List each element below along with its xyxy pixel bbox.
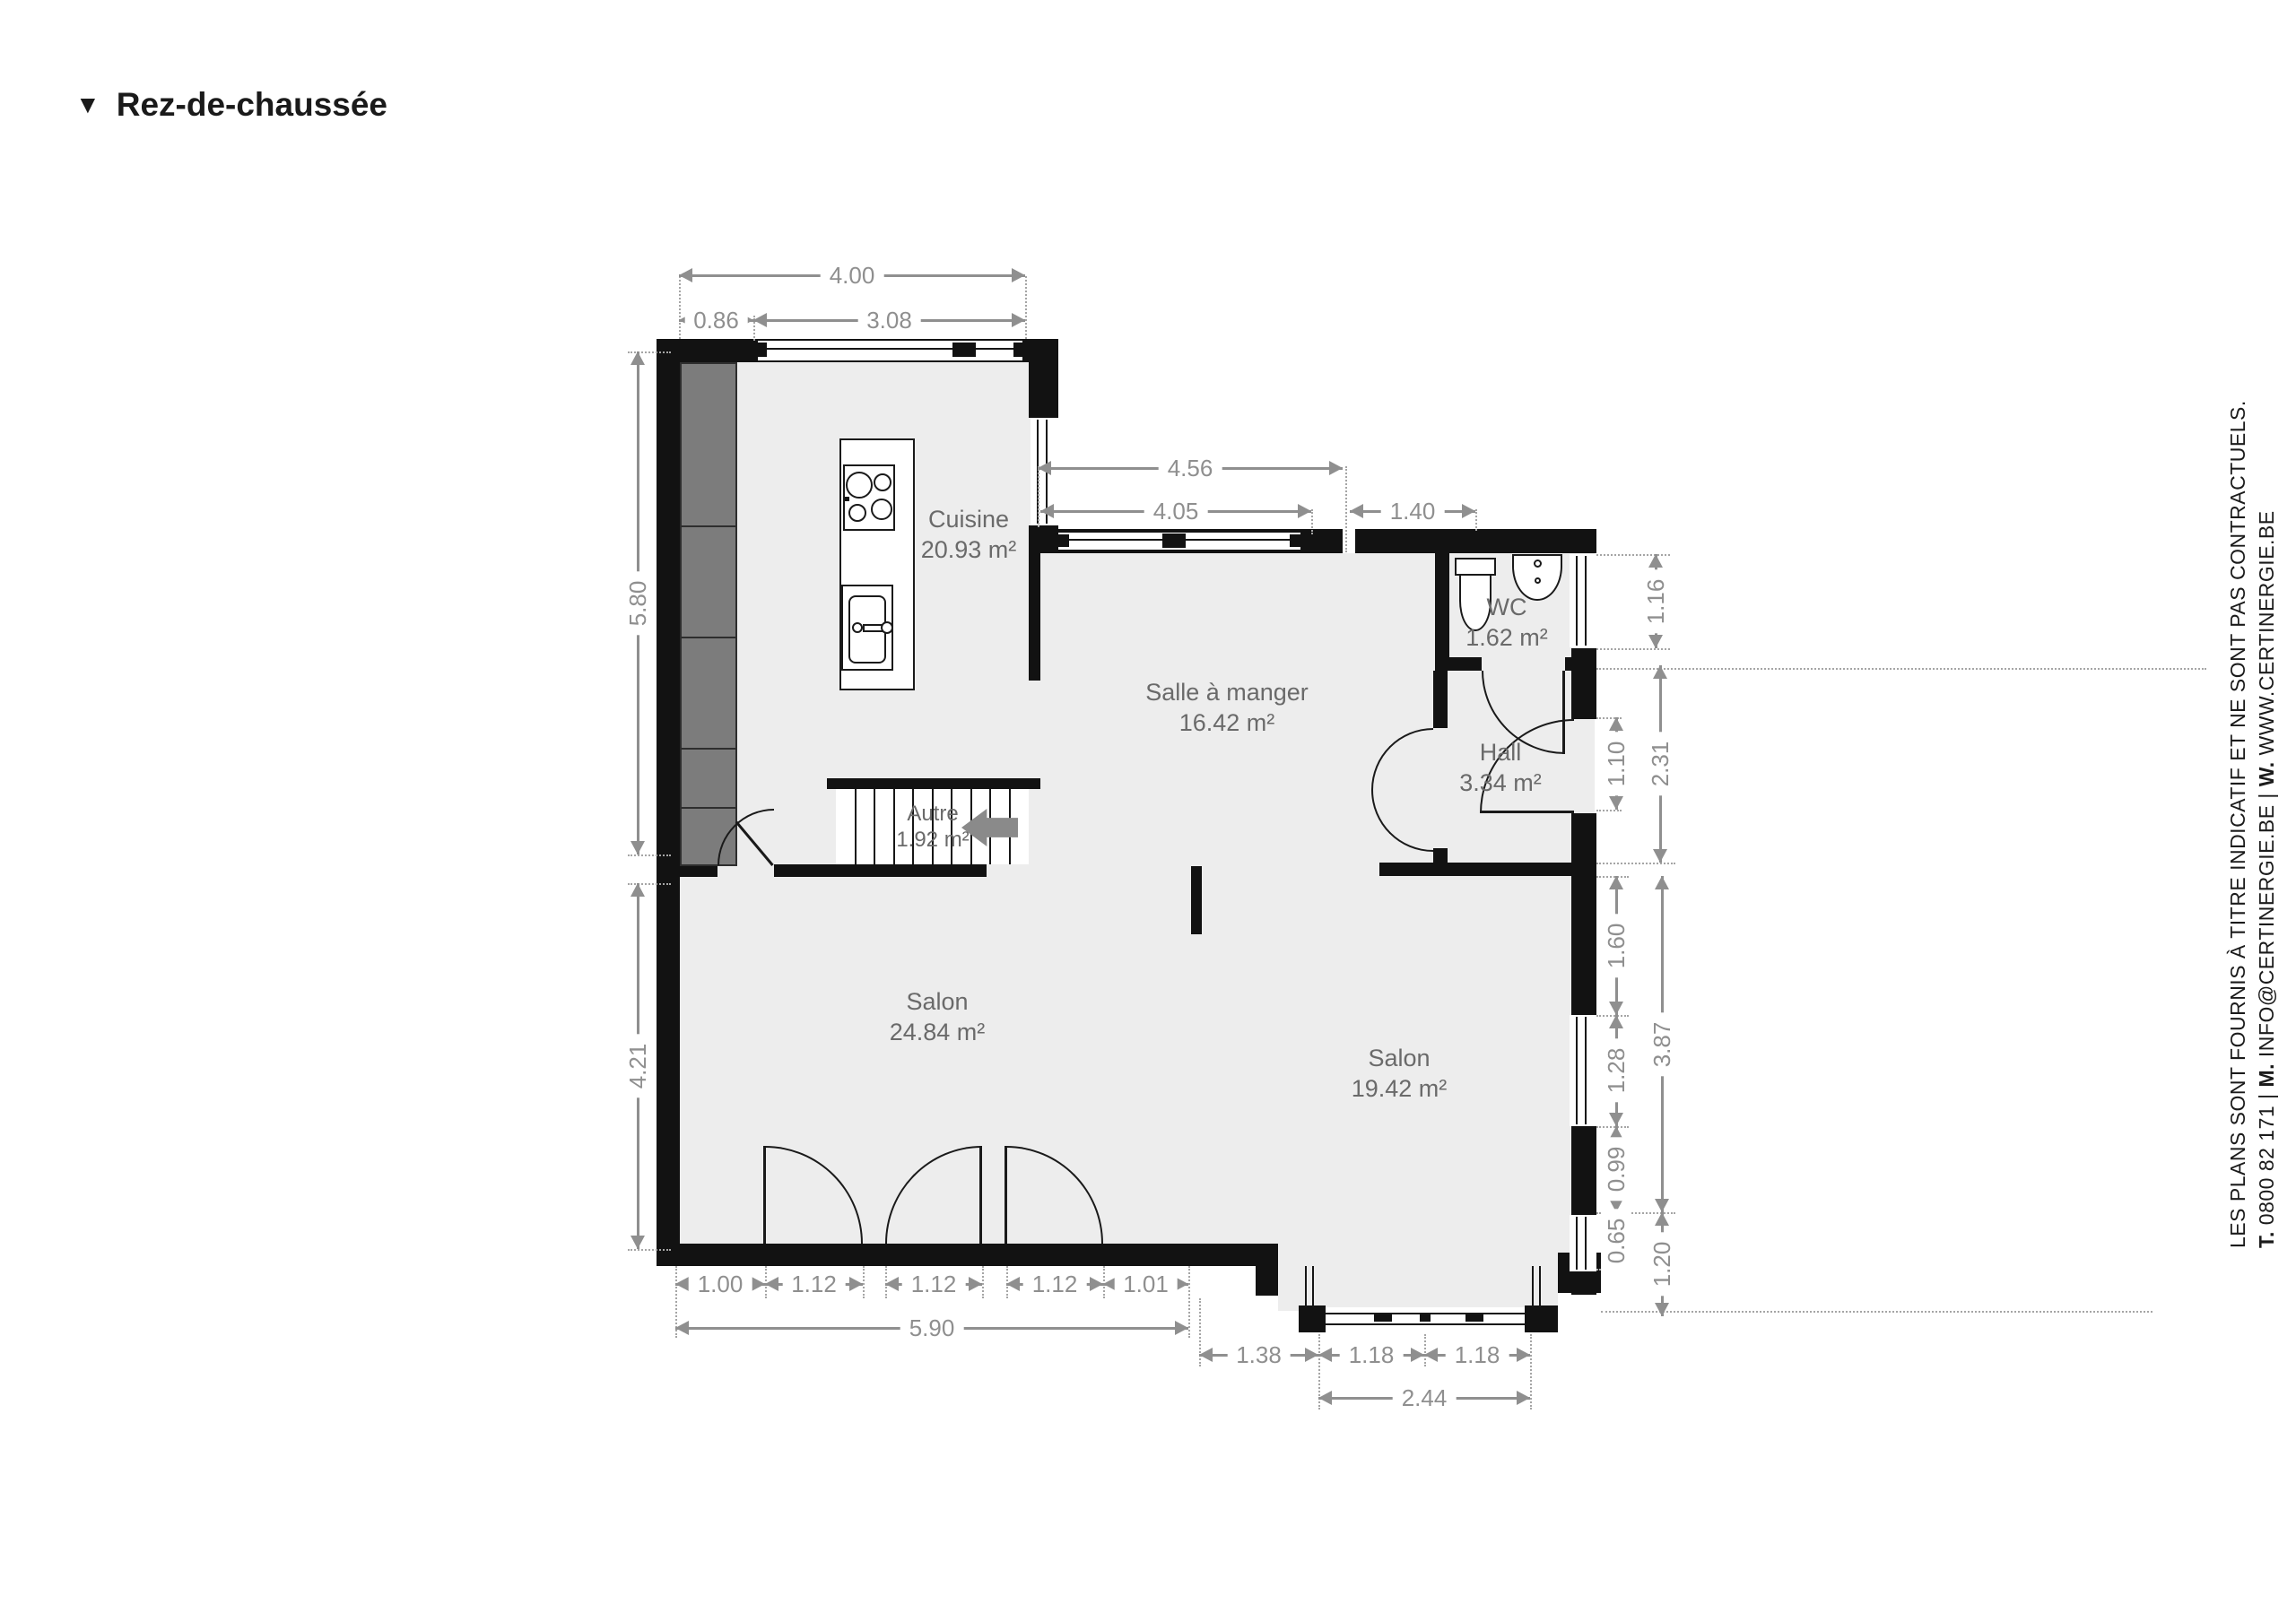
kitchen-counter — [680, 525, 737, 638]
window-mullion — [1162, 533, 1186, 548]
dimension-label: 3.08 — [857, 307, 921, 334]
dimension: 4.00 — [679, 262, 1025, 289]
window-jamb — [1290, 534, 1300, 547]
wall — [1379, 863, 1596, 876]
room-name: Salon — [839, 986, 1036, 1017]
dimension: 4.21 — [624, 883, 651, 1249]
dimension: 1.18 — [1318, 1341, 1424, 1368]
dimension-label: 1.12 — [902, 1271, 966, 1297]
window-glazing — [1312, 1266, 1314, 1307]
dimension: 5.80 — [624, 351, 651, 854]
room-label-salle-a-manger: Salle à manger16.42 m² — [1110, 677, 1344, 738]
dimension: 0.86 — [679, 307, 753, 334]
room-label-hall: Hall3.34 m² — [1433, 737, 1568, 798]
dimension-label: 1.18 — [1446, 1341, 1509, 1368]
dimension: 2.31 — [1647, 665, 1674, 863]
stair-tread — [855, 789, 857, 864]
extension-line — [1345, 466, 1347, 552]
wall — [1433, 671, 1448, 728]
dimension: 3.08 — [753, 307, 1025, 334]
dimension-label: 1.60 — [1603, 914, 1630, 977]
cooktop-burner — [846, 472, 873, 499]
window-glazing — [1576, 556, 1578, 646]
dimension-label: 1.12 — [782, 1271, 846, 1297]
wall — [1435, 657, 1482, 671]
dimension-label: 0.99 — [1603, 1138, 1630, 1201]
sink-faucet — [852, 622, 863, 633]
dimension: 0.65 — [1603, 1212, 1630, 1269]
room-area: 16.42 m² — [1110, 707, 1344, 738]
toilet-icon — [1455, 558, 1496, 576]
floor-plan-page: ▼ Rez-de-chaussée — [0, 0, 2296, 1622]
window-glazing — [1576, 1017, 1578, 1124]
dimension: 1.12 — [765, 1271, 863, 1297]
extension-line — [1025, 276, 1027, 339]
floor-title: ▼ Rez-de-chaussée — [75, 86, 387, 124]
room-area: 19.42 m² — [1300, 1073, 1498, 1104]
washbasin-drain — [1535, 577, 1541, 584]
door-leaf — [1004, 1146, 1007, 1244]
room-name: Cuisine — [870, 504, 1067, 534]
wall — [1029, 339, 1058, 418]
window-glazing — [1585, 1017, 1587, 1124]
wall — [1256, 1244, 1278, 1296]
window-glazing — [1539, 1266, 1541, 1307]
dimension-label: 4.00 — [821, 262, 884, 289]
dimension: 0.99 — [1603, 1126, 1630, 1212]
window-jamb — [1013, 343, 1022, 357]
entrance-door-leaf — [1480, 811, 1574, 813]
wall — [1571, 648, 1596, 719]
dimension-label: 1.28 — [1603, 1039, 1630, 1103]
dimension: 1.60 — [1603, 876, 1630, 1015]
room-name: Autre — [865, 801, 1000, 827]
wall-bay-corner — [1525, 1305, 1558, 1332]
window — [1570, 1015, 1596, 1126]
window-glazing — [1326, 1323, 1525, 1325]
window — [758, 341, 1022, 360]
contact-text: T. 0800 82 171 | M. INFO@CERTINERGIE.BE … — [2255, 412, 2279, 1248]
wall — [1029, 553, 1040, 681]
dimension-label: 3.87 — [1648, 1012, 1675, 1076]
dimension-label: 2.31 — [1647, 733, 1674, 796]
dimension-label: 4.56 — [1159, 455, 1222, 481]
window-jamb — [758, 343, 767, 357]
dimension-label: 5.80 — [624, 571, 651, 635]
room-label-autre: Autre1.92 m² — [865, 801, 1000, 853]
dimension-label: 1.10 — [1603, 732, 1630, 795]
dimension-label: 1.38 — [1227, 1341, 1291, 1368]
page-title: Rez-de-chaussée — [117, 86, 387, 124]
dimension: 1.16 — [1642, 554, 1669, 648]
contact-web: WWW.CERTINERGIE.BE — [2255, 510, 2278, 761]
washbasin-faucet — [1534, 559, 1542, 568]
extension-line — [1311, 509, 1313, 534]
dimension: 3.87 — [1648, 876, 1675, 1212]
door-leaf — [979, 1146, 982, 1244]
room-area: 24.84 m² — [839, 1017, 1036, 1047]
room-label-salon-2: Salon19.42 m² — [1300, 1043, 1498, 1104]
window-glazing — [1585, 556, 1587, 646]
dimension: 1.00 — [675, 1271, 765, 1297]
dimension-label: 2.44 — [1393, 1384, 1457, 1411]
dimension-label: 1.16 — [1642, 569, 1669, 633]
extension-line — [1188, 1266, 1190, 1338]
room-label-wc: WC1.62 m² — [1453, 592, 1561, 653]
room-name: Hall — [1433, 737, 1568, 768]
dimension: 4.05 — [1040, 498, 1311, 525]
extension-line — [982, 1266, 984, 1298]
sink-faucet-knob — [881, 621, 893, 634]
contact-web-prefix: W. — [2255, 761, 2278, 786]
dimension: 1.12 — [1006, 1271, 1103, 1297]
wall — [657, 1244, 1278, 1266]
wall — [1191, 866, 1202, 934]
wall — [774, 864, 987, 877]
dimension-label: 1.18 — [1340, 1341, 1404, 1368]
kitchen-counter — [680, 637, 737, 750]
contact-mail-prefix: M. — [2255, 1063, 2278, 1088]
dimension: 2.44 — [1318, 1384, 1530, 1411]
window-mullion — [952, 343, 976, 357]
window-mullion — [1465, 1314, 1483, 1322]
window-glazing — [1585, 1217, 1587, 1270]
room-label-salon-1: Salon24.84 m² — [839, 986, 1036, 1047]
extension-line — [1596, 668, 2206, 670]
dimension-label: 4.05 — [1144, 498, 1208, 525]
dimension: 1.12 — [885, 1271, 982, 1297]
dimension: 1.18 — [1424, 1341, 1530, 1368]
extension-line — [628, 854, 671, 856]
dimension-label: 0.86 — [684, 307, 748, 334]
dimension: 1.10 — [1603, 717, 1630, 810]
extension-line — [1475, 509, 1477, 531]
room-area: 1.92 m² — [865, 827, 1000, 853]
kitchen-counter — [680, 748, 737, 809]
dimension-label: 1.01 — [1114, 1271, 1178, 1297]
extension-line — [1596, 648, 1670, 650]
window-glazing — [1305, 1266, 1307, 1307]
dimension: 1.28 — [1603, 1015, 1630, 1126]
window-mullion — [1374, 1314, 1392, 1322]
wall-bay-corner — [1299, 1305, 1326, 1332]
room-area: 1.62 m² — [1453, 622, 1561, 653]
dimension: 1.38 — [1199, 1341, 1318, 1368]
door-leaf — [763, 1146, 766, 1244]
wall — [827, 778, 1040, 789]
dimension: 5.90 — [675, 1314, 1188, 1341]
room-area: 20.93 m² — [870, 534, 1067, 565]
extension-line — [863, 1266, 865, 1298]
wall — [1435, 553, 1449, 671]
wall — [657, 339, 680, 1266]
dimension-label: 4.21 — [624, 1035, 651, 1098]
room-area: 3.34 m² — [1433, 768, 1568, 798]
dimension-label: 1.40 — [1381, 498, 1445, 525]
room-name: Salle à manger — [1110, 677, 1344, 707]
cooktop-burner — [874, 473, 891, 491]
extension-line — [1596, 863, 1675, 864]
wall — [1571, 1126, 1596, 1215]
dimension-label: 1.20 — [1648, 1233, 1675, 1297]
wall — [671, 866, 717, 877]
dimension-label: 5.90 — [900, 1314, 964, 1341]
dimension-label: 1.00 — [689, 1271, 752, 1297]
contact-mail: INFO@CERTINERGIE.BE | — [2255, 786, 2278, 1063]
extension-line — [1530, 1334, 1532, 1409]
contact-phone-prefix: T. — [2255, 1231, 2278, 1248]
window — [1570, 554, 1596, 647]
dimension: 1.01 — [1103, 1271, 1188, 1297]
room-name: WC — [1453, 592, 1561, 622]
disclaimer-text: LES PLANS SONT FOURNIS À TITRE INDICATIF… — [2226, 412, 2250, 1248]
contact-phone: 0800 82 171 | — [2255, 1088, 2278, 1232]
window-glazing — [1576, 1217, 1578, 1270]
window-glazing — [758, 348, 1022, 350]
dimension-label: 1.12 — [1023, 1271, 1087, 1297]
extension-line — [1596, 810, 1622, 811]
extension-line — [1601, 1311, 2152, 1313]
window-glazing — [1532, 1266, 1534, 1307]
extension-line — [628, 1249, 671, 1251]
cooktop-burner — [848, 504, 866, 522]
dimension: 1.20 — [1648, 1212, 1675, 1316]
collapse-triangle-icon[interactable]: ▼ — [75, 92, 100, 117]
cooktop-dot — [845, 497, 849, 501]
room-fill-bay — [1278, 1264, 1558, 1311]
wall — [1571, 813, 1596, 1015]
dimension: 1.40 — [1350, 498, 1475, 525]
room-name: Salon — [1300, 1043, 1498, 1073]
room-label-cuisine: Cuisine20.93 m² — [870, 504, 1067, 565]
dimension-label: 0.65 — [1603, 1209, 1630, 1272]
window-mullion — [1420, 1314, 1431, 1322]
kitchen-counter — [680, 362, 737, 527]
window — [1570, 1215, 1596, 1271]
dimension: 4.56 — [1038, 455, 1343, 481]
